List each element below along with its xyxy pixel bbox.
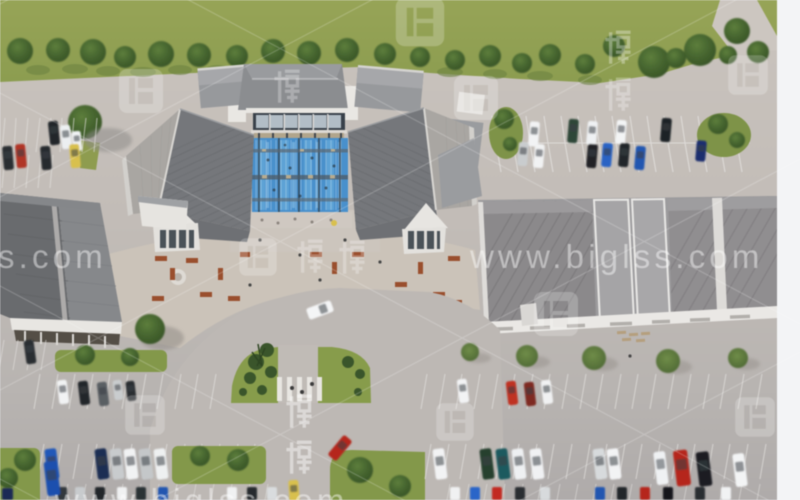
svg-text:www.biglss.com: www.biglss.com [54, 482, 349, 500]
svg-text:www.biglss.com: www.biglss.com [0, 238, 107, 275]
svg-text:www.biglss.com: www.biglss.com [469, 238, 764, 275]
